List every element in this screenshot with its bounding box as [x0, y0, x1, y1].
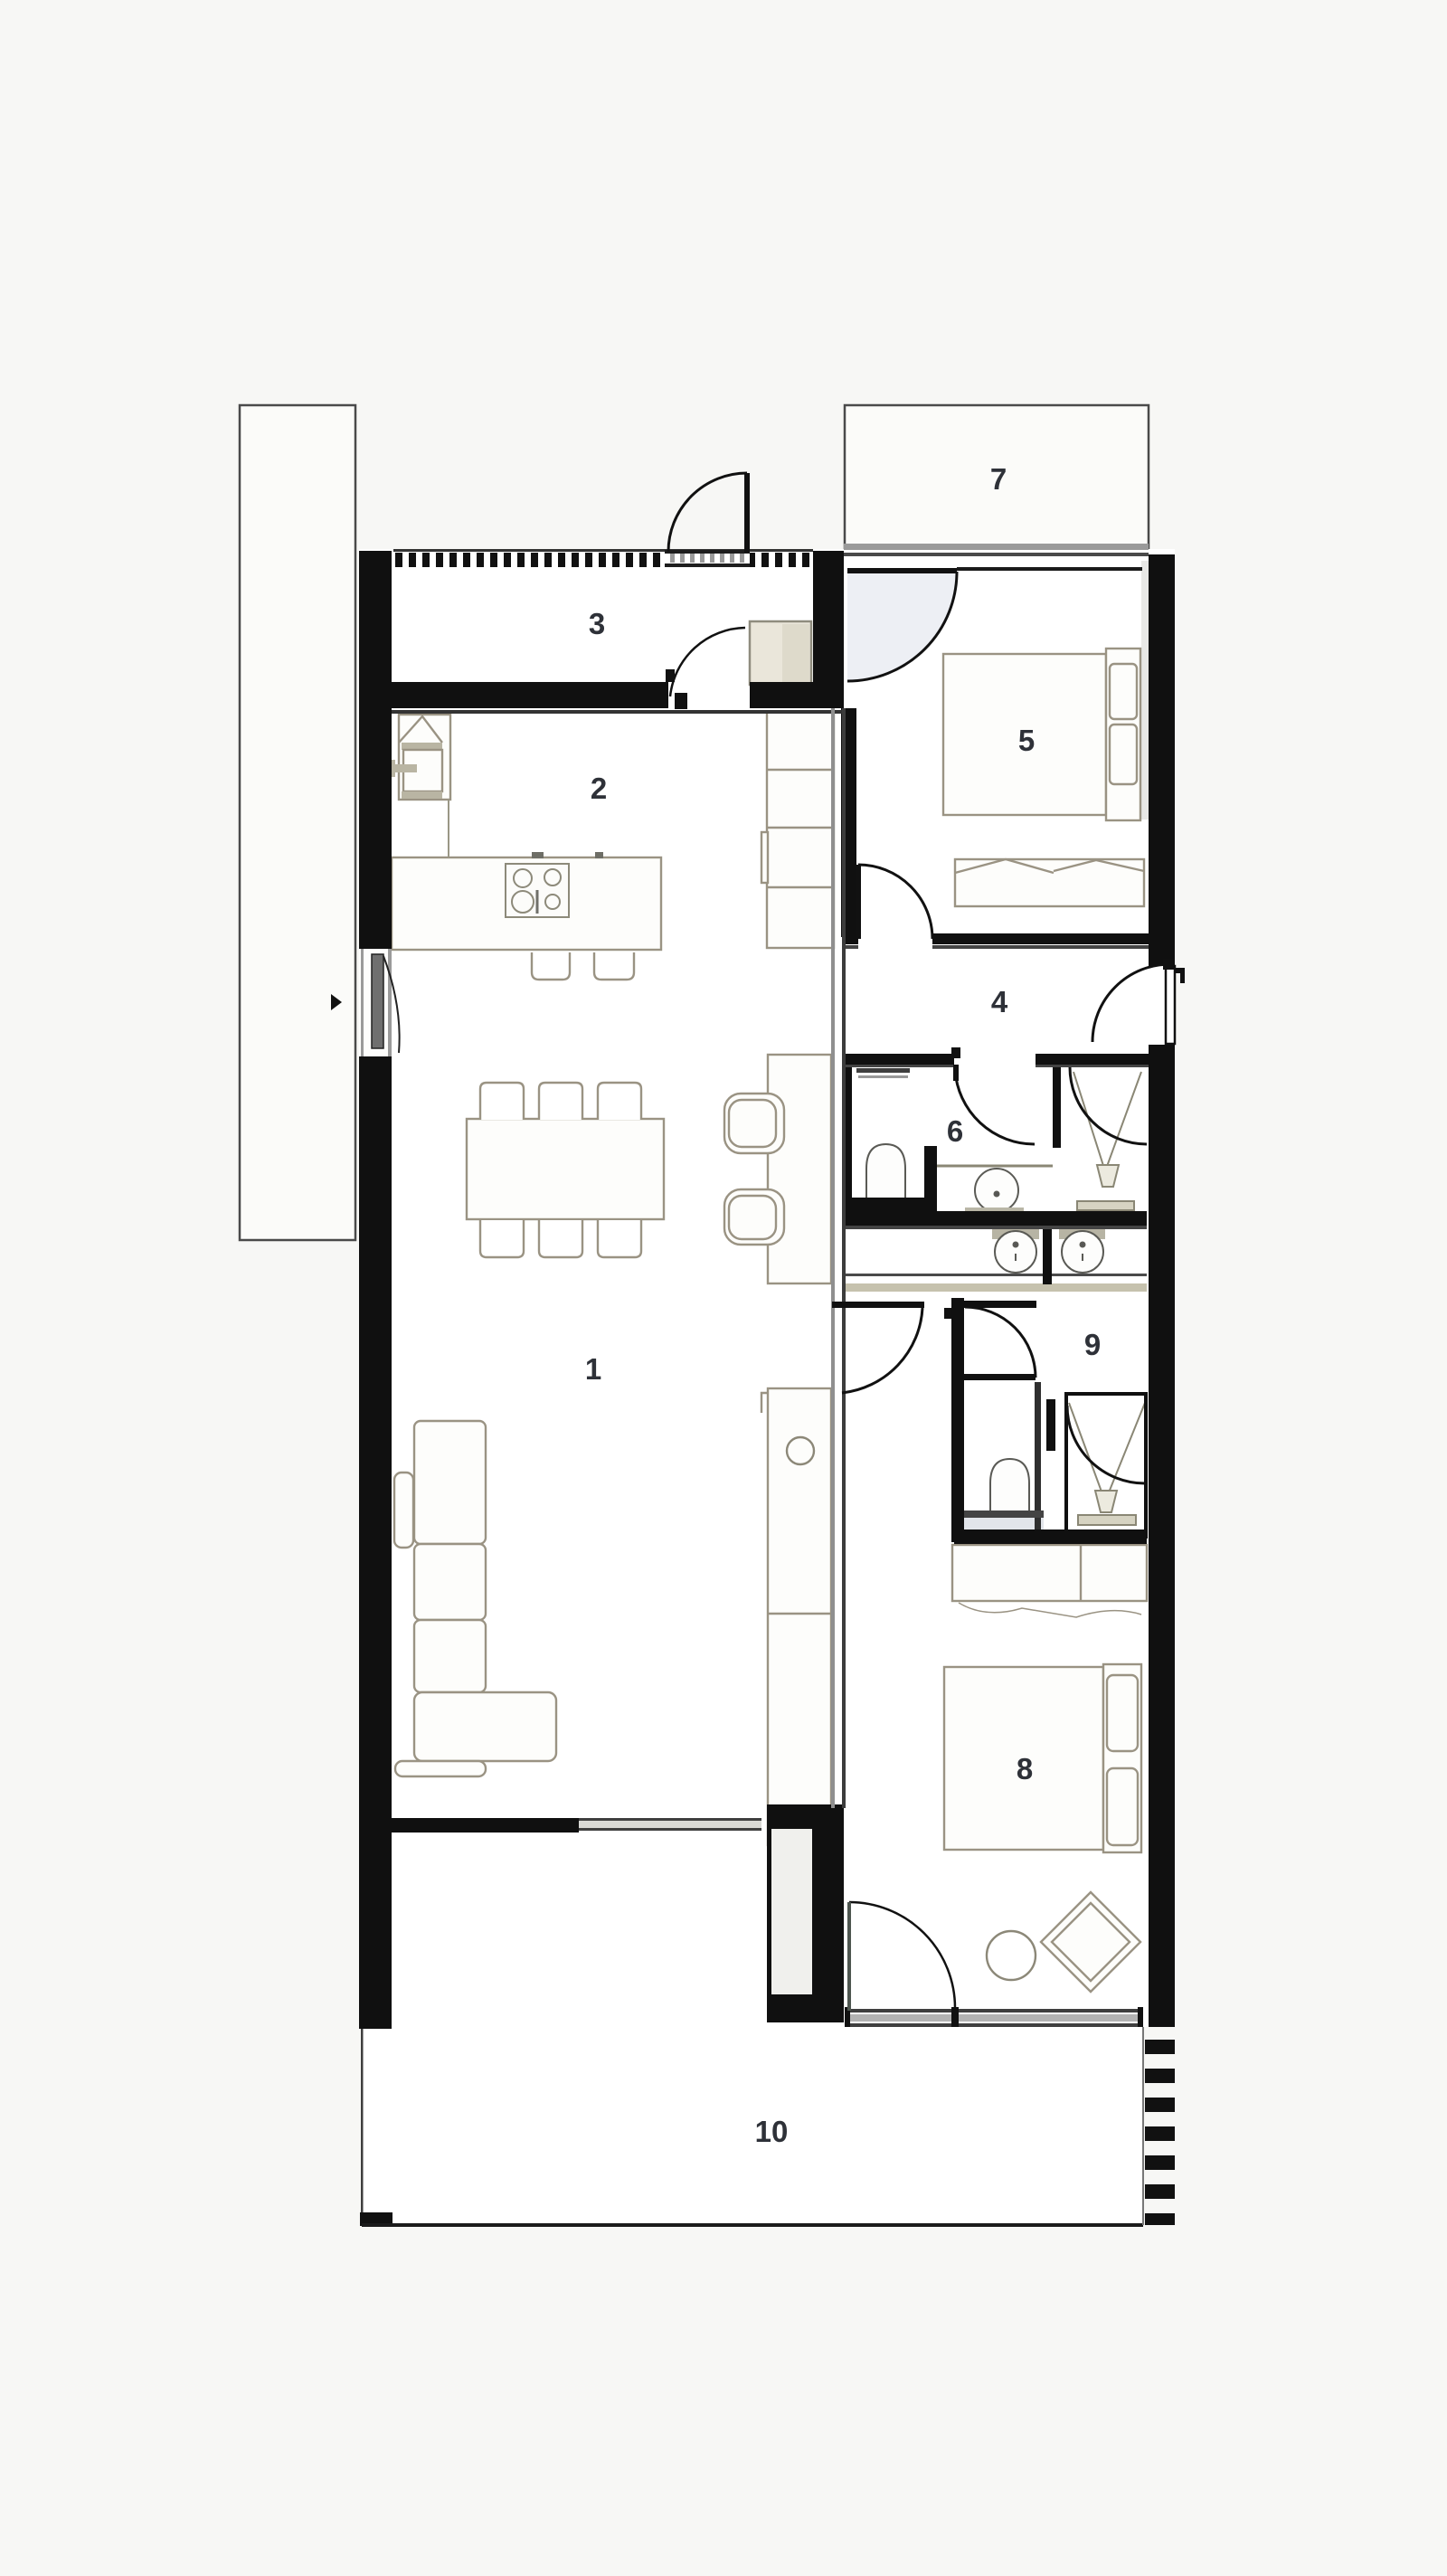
svg-text:10: 10: [755, 2115, 789, 2148]
svg-text:5: 5: [1018, 724, 1035, 757]
svg-text:1: 1: [585, 1352, 601, 1386]
svg-text:6: 6: [947, 1114, 963, 1148]
svg-text:3: 3: [589, 607, 605, 640]
svg-text:9: 9: [1084, 1328, 1101, 1361]
svg-text:4: 4: [991, 985, 1008, 1018]
svg-text:2: 2: [591, 772, 607, 805]
svg-text:7: 7: [990, 462, 1007, 496]
svg-text:8: 8: [1017, 1752, 1033, 1785]
